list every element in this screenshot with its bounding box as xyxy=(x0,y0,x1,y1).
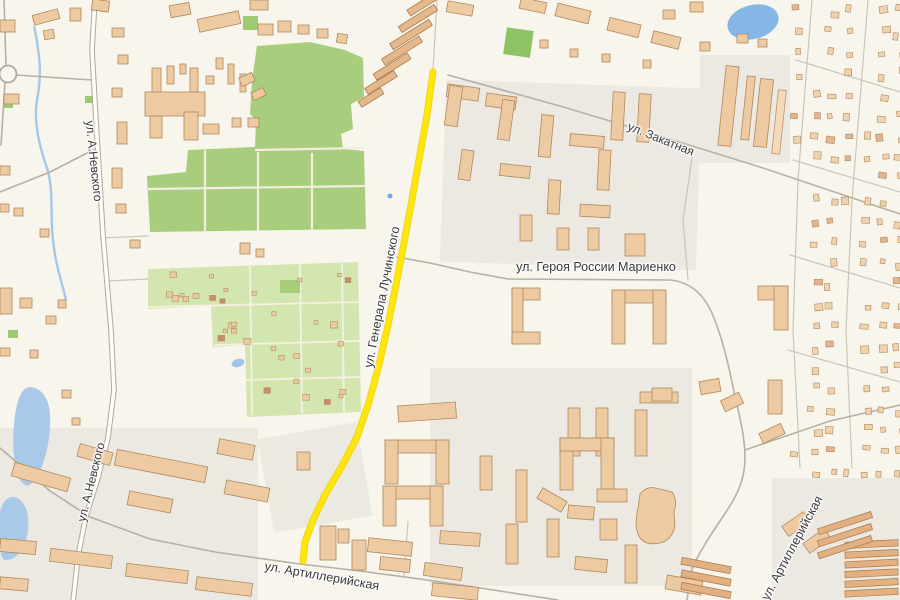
house xyxy=(894,470,900,477)
house xyxy=(813,194,819,201)
building xyxy=(72,418,80,425)
house xyxy=(894,362,900,368)
house xyxy=(812,347,818,355)
building xyxy=(0,204,9,212)
house xyxy=(814,279,823,285)
building xyxy=(547,519,559,557)
house xyxy=(863,445,871,450)
house xyxy=(845,4,851,12)
building xyxy=(91,0,109,12)
building xyxy=(499,163,530,178)
building xyxy=(216,58,223,69)
house xyxy=(825,302,832,309)
house xyxy=(859,241,866,247)
house xyxy=(812,220,819,228)
house xyxy=(894,323,900,328)
garden-hut xyxy=(231,329,236,333)
building xyxy=(30,350,38,358)
garden-hut xyxy=(209,274,213,278)
building xyxy=(278,21,291,32)
building xyxy=(40,229,49,237)
house xyxy=(877,116,885,123)
house xyxy=(825,26,832,31)
pond xyxy=(388,194,393,199)
house xyxy=(795,28,802,35)
house xyxy=(880,201,886,207)
house xyxy=(860,346,869,354)
house xyxy=(876,134,884,142)
house xyxy=(879,345,887,353)
house xyxy=(831,12,839,18)
house xyxy=(795,48,801,55)
garden-hut xyxy=(170,272,177,278)
house xyxy=(861,472,867,478)
building xyxy=(206,76,214,84)
garden-hut xyxy=(252,292,256,296)
house xyxy=(824,283,830,291)
house xyxy=(847,28,853,34)
house xyxy=(878,52,885,58)
house xyxy=(826,341,833,347)
garden-hut xyxy=(271,346,276,350)
building xyxy=(385,440,398,484)
house xyxy=(893,277,900,284)
house xyxy=(814,113,820,119)
house xyxy=(895,263,900,271)
house xyxy=(831,238,837,245)
house xyxy=(814,323,820,329)
house xyxy=(860,258,866,266)
building xyxy=(167,66,174,84)
house xyxy=(883,154,890,160)
building xyxy=(256,249,264,257)
garden-hut xyxy=(220,299,225,303)
green-patch xyxy=(280,280,300,293)
building xyxy=(20,298,32,308)
garden-hut xyxy=(303,394,310,400)
house xyxy=(860,324,869,330)
house xyxy=(894,221,900,229)
house xyxy=(864,385,870,391)
building xyxy=(768,380,782,414)
house xyxy=(793,136,801,143)
building-irregular xyxy=(636,488,676,544)
house xyxy=(864,197,871,205)
house xyxy=(876,471,881,477)
house xyxy=(810,133,818,140)
house xyxy=(896,111,900,117)
building xyxy=(758,39,767,47)
building xyxy=(336,33,347,44)
house xyxy=(825,426,833,434)
building xyxy=(600,519,617,540)
house xyxy=(893,33,899,41)
building xyxy=(117,122,127,144)
building xyxy=(574,556,607,572)
building xyxy=(379,556,410,572)
building xyxy=(588,228,599,250)
garden-hut xyxy=(223,329,227,333)
garden-hut xyxy=(272,312,276,316)
building xyxy=(625,234,645,256)
house xyxy=(826,446,834,452)
house xyxy=(882,303,889,309)
building xyxy=(150,116,162,138)
building xyxy=(480,456,492,490)
house xyxy=(895,446,900,454)
building xyxy=(430,486,443,526)
house xyxy=(878,407,884,413)
building xyxy=(635,410,647,456)
house xyxy=(812,449,819,455)
house xyxy=(790,113,797,119)
building xyxy=(0,577,28,591)
house xyxy=(831,157,839,164)
house xyxy=(846,93,853,99)
house xyxy=(882,387,889,392)
house xyxy=(814,429,823,436)
garden-hut xyxy=(224,288,228,291)
house xyxy=(832,322,839,328)
building xyxy=(62,390,71,398)
building xyxy=(653,290,666,344)
map-canvas[interactable]: ул. А.Невскогоул. А.Невскогоул. Генерала… xyxy=(0,0,900,600)
house xyxy=(878,172,886,179)
garden-hut xyxy=(210,295,216,300)
building xyxy=(248,118,259,127)
green-patch xyxy=(8,330,18,338)
house xyxy=(843,113,850,121)
building xyxy=(580,204,611,218)
building xyxy=(184,112,198,140)
building xyxy=(250,0,268,10)
building xyxy=(4,94,19,104)
building xyxy=(601,438,614,490)
building xyxy=(602,54,610,62)
house xyxy=(792,5,799,10)
building xyxy=(0,20,15,32)
building xyxy=(652,388,672,401)
green-patch xyxy=(503,27,533,57)
house xyxy=(815,303,824,310)
house xyxy=(832,199,839,205)
building xyxy=(130,240,140,248)
house xyxy=(878,74,885,82)
house xyxy=(810,242,817,247)
building xyxy=(436,440,449,484)
garden-hut xyxy=(264,388,270,394)
building xyxy=(352,540,366,570)
building xyxy=(58,300,66,308)
house xyxy=(882,26,890,33)
garden-hut xyxy=(297,278,301,282)
house xyxy=(831,469,837,475)
garden-hut xyxy=(193,293,199,298)
building xyxy=(700,42,710,51)
building xyxy=(557,228,569,250)
house xyxy=(881,367,888,373)
building xyxy=(228,64,234,84)
building xyxy=(240,243,250,254)
garden-hut xyxy=(172,295,179,301)
house xyxy=(880,427,885,433)
building xyxy=(46,316,56,324)
garden-hut xyxy=(338,341,343,346)
house xyxy=(812,368,819,375)
building xyxy=(0,538,36,554)
building xyxy=(512,332,540,344)
house xyxy=(828,388,835,394)
house xyxy=(843,469,849,477)
building xyxy=(567,505,594,520)
house xyxy=(880,95,888,102)
house xyxy=(895,4,900,11)
house xyxy=(826,136,835,144)
building xyxy=(112,168,122,188)
house xyxy=(846,52,853,58)
house xyxy=(845,156,851,161)
house xyxy=(866,408,872,414)
house xyxy=(877,219,883,226)
building xyxy=(258,24,273,35)
house xyxy=(864,424,872,430)
building xyxy=(506,524,518,564)
building xyxy=(570,134,605,149)
building xyxy=(180,64,186,74)
garden-hut xyxy=(244,338,251,344)
garden-hut xyxy=(330,322,337,328)
building xyxy=(612,290,625,344)
building xyxy=(625,545,637,583)
house xyxy=(896,410,900,417)
building xyxy=(43,29,54,40)
house xyxy=(880,259,885,264)
building xyxy=(440,531,481,547)
house xyxy=(846,134,853,139)
house xyxy=(813,90,821,98)
building xyxy=(298,25,309,34)
garden-hut xyxy=(294,354,300,359)
house xyxy=(880,322,887,328)
house xyxy=(894,154,900,160)
building xyxy=(597,489,627,502)
house xyxy=(831,258,838,266)
building xyxy=(317,29,328,38)
house xyxy=(812,472,820,478)
garden-hut xyxy=(232,322,237,326)
garden-hut xyxy=(166,292,172,297)
building xyxy=(70,8,81,21)
building xyxy=(112,28,124,37)
house xyxy=(827,113,832,119)
garden-hut xyxy=(218,335,225,341)
map-tiles xyxy=(0,0,900,600)
building xyxy=(0,348,10,356)
house xyxy=(828,47,834,54)
building xyxy=(112,88,122,97)
building xyxy=(540,40,548,48)
building xyxy=(203,124,219,134)
house xyxy=(827,218,833,224)
garden-hut xyxy=(294,379,299,383)
house xyxy=(880,237,887,243)
garden-hut xyxy=(337,273,341,276)
building xyxy=(516,470,527,522)
house xyxy=(807,406,813,412)
building xyxy=(383,486,396,526)
house xyxy=(864,156,870,162)
building xyxy=(611,92,625,141)
house xyxy=(862,217,870,223)
house xyxy=(841,197,849,205)
building xyxy=(690,2,703,12)
building xyxy=(116,204,126,213)
house xyxy=(826,408,835,415)
house xyxy=(797,74,802,80)
house xyxy=(790,451,798,457)
building xyxy=(0,288,12,314)
house xyxy=(814,383,820,388)
building xyxy=(14,208,23,216)
building xyxy=(320,526,336,560)
green-patch xyxy=(243,16,258,30)
building xyxy=(547,180,561,215)
building xyxy=(520,215,532,241)
building xyxy=(118,55,128,64)
garden-hut xyxy=(340,389,346,394)
building xyxy=(232,118,241,127)
house xyxy=(814,152,822,160)
building xyxy=(152,68,161,94)
house xyxy=(864,132,870,140)
house xyxy=(881,448,889,453)
building xyxy=(643,60,651,68)
garden-hut xyxy=(183,296,189,301)
garden-hut xyxy=(339,394,343,398)
building xyxy=(0,166,10,175)
building xyxy=(597,150,611,191)
garden-hut xyxy=(306,368,311,372)
house xyxy=(892,343,899,351)
garden-hut xyxy=(324,399,330,404)
building xyxy=(637,94,651,143)
house xyxy=(865,305,871,310)
building xyxy=(190,68,198,92)
building xyxy=(338,529,349,543)
garden-hut xyxy=(314,321,318,325)
garden-hut xyxy=(345,278,351,283)
building xyxy=(663,10,675,19)
house xyxy=(845,69,852,76)
building xyxy=(570,49,578,57)
building xyxy=(297,452,310,470)
building xyxy=(737,34,748,43)
house xyxy=(828,94,837,99)
building xyxy=(774,286,788,330)
garden-hut xyxy=(279,355,285,360)
house xyxy=(879,6,888,14)
